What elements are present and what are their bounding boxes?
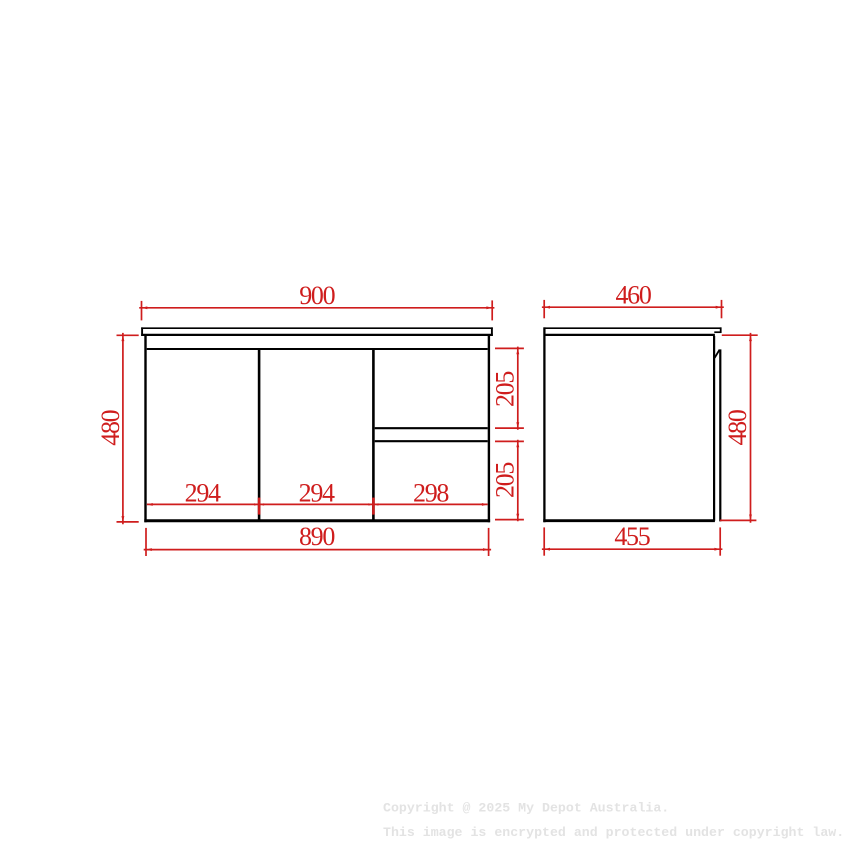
svg-text:480: 480 [96,409,125,445]
svg-text:294: 294 [299,479,335,508]
svg-text:455: 455 [614,522,649,551]
svg-text:890: 890 [299,522,335,551]
svg-text:298: 298 [413,479,449,508]
svg-text:205: 205 [490,463,519,498]
svg-text:900: 900 [299,281,335,310]
svg-text:460: 460 [615,281,651,310]
svg-text:480: 480 [723,409,752,445]
svg-text:205: 205 [490,372,519,407]
svg-text:This image is encrypted and pr: This image is encrypted and protected un… [383,825,844,840]
svg-text:Copyright @ 2025 My Depot Aust: Copyright @ 2025 My Depot Australia. [383,800,669,815]
svg-text:294: 294 [185,479,221,508]
